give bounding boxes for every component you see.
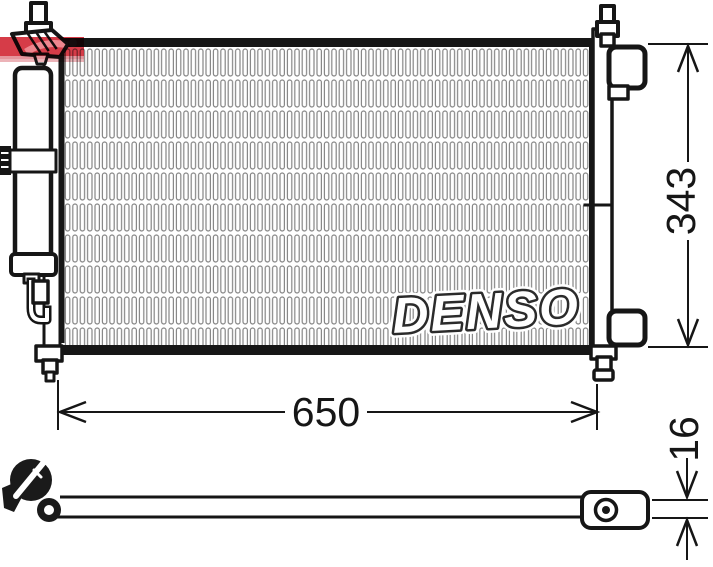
technical-drawing-page: 343 650 16 — [0, 0, 713, 567]
core-top-bar — [62, 38, 594, 47]
dimension-label-height: 343 — [658, 167, 704, 235]
denso-logo-text: DENSO — [391, 278, 581, 344]
dimension-width-650: 650 — [58, 380, 597, 435]
dimension-label-thickness: 16 — [661, 416, 707, 462]
drier-bottom-cap — [11, 254, 56, 275]
side-view-left-fitting — [2, 459, 61, 522]
connector-block-bottom-right — [609, 311, 645, 345]
receiver-drier — [0, 68, 56, 283]
condenser-drawing: 343 650 16 — [0, 0, 713, 567]
dimension-thickness-16: 16 — [652, 416, 708, 560]
denso-watermark: DENSO DENSO — [391, 278, 581, 344]
connector-block-top-right — [609, 47, 645, 88]
core-bottom-bar — [62, 345, 594, 355]
dimension-height-343: 343 — [648, 44, 708, 347]
condenser-side-view — [2, 459, 648, 528]
drier-clamp-band — [10, 150, 56, 172]
red-stamp-watermark — [0, 37, 84, 62]
dimension-label-width: 650 — [292, 389, 360, 435]
